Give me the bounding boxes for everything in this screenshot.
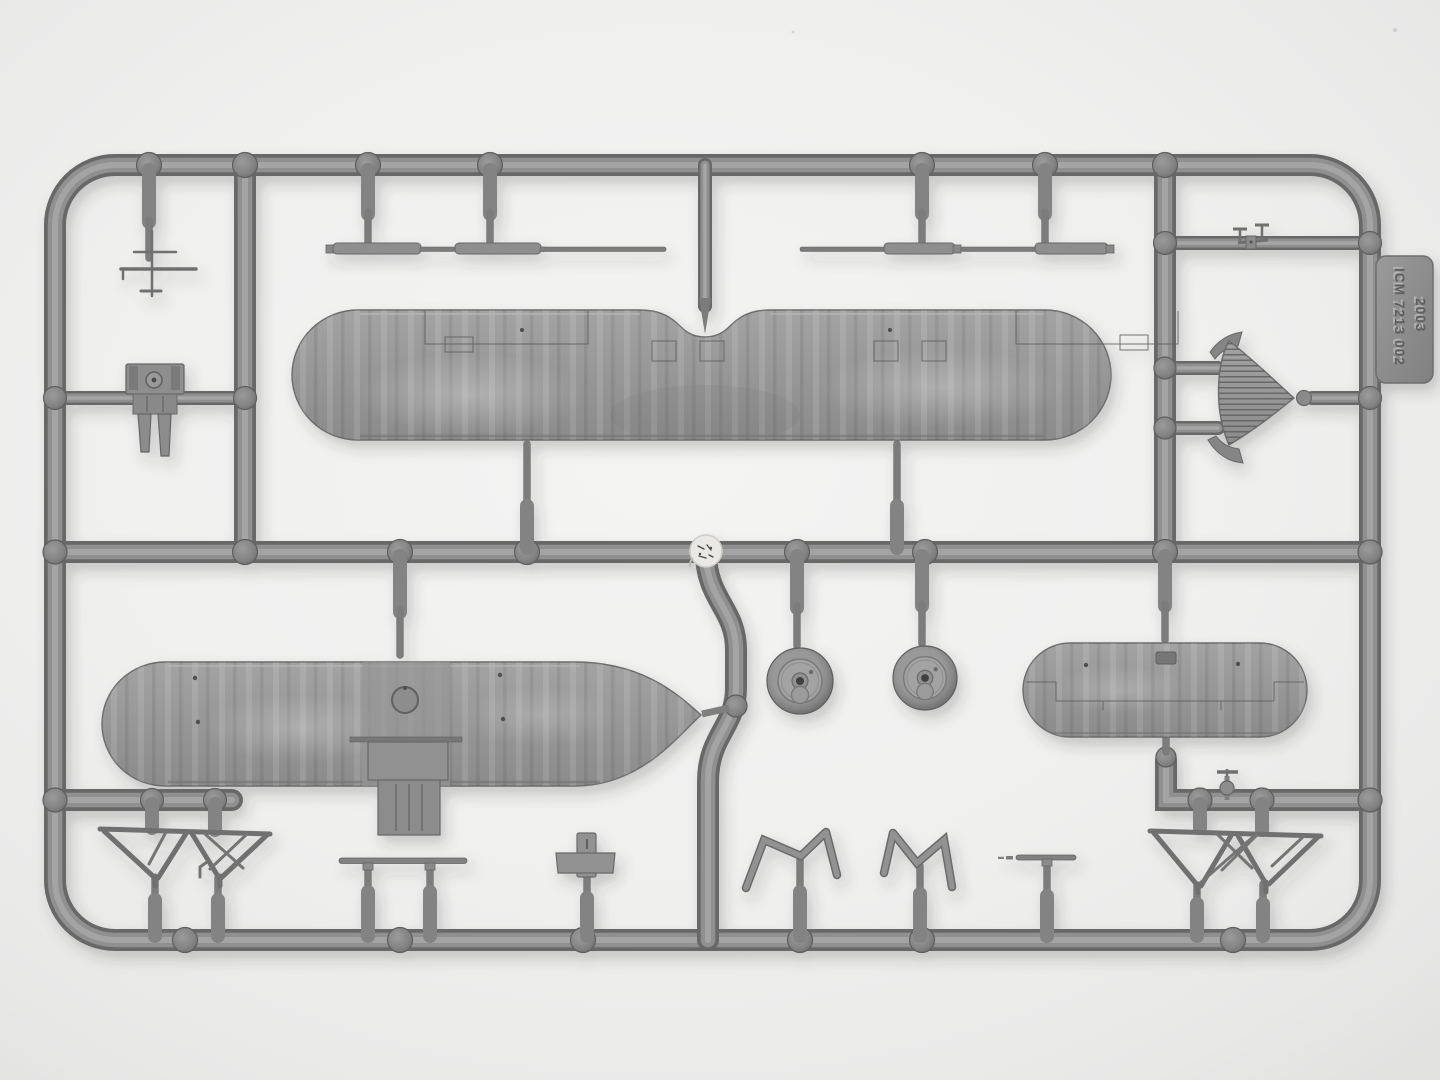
axle-hole: [796, 677, 804, 685]
wheel-right: [893, 646, 957, 710]
kit-id-tag: ICM 7213 002 ICM 7213 002 2003 2003: [1376, 256, 1433, 383]
tag-year: 2003: [1413, 298, 1428, 332]
axle-hole: [921, 674, 929, 682]
panel-slot: [1156, 652, 1176, 664]
small-wing-panel-part: [1023, 643, 1307, 737]
dust-speck: [792, 31, 795, 34]
wheel-left: [767, 648, 833, 714]
center-section-bar: [350, 737, 462, 742]
upper-wing-part: [292, 310, 1178, 445]
dust-speck: [1393, 28, 1397, 32]
center-section-hole: [392, 687, 418, 713]
sprue-scene: ICM 7213 002 ICM 7213 002 2003 2003: [0, 0, 1440, 1080]
sprue-photo: ICM 7213 002 ICM 7213 002 2003 2003: [0, 0, 1440, 1080]
cylinder-bank: [158, 414, 171, 456]
valve-detail: [792, 687, 809, 704]
center-section-box: [368, 742, 448, 780]
valve-detail: [917, 683, 933, 699]
fan-stub-ball: [1297, 391, 1312, 406]
injection-point: [690, 535, 722, 567]
tag-code: ICM 7213 002: [1392, 268, 1407, 366]
cylinder-bank: [138, 414, 151, 452]
